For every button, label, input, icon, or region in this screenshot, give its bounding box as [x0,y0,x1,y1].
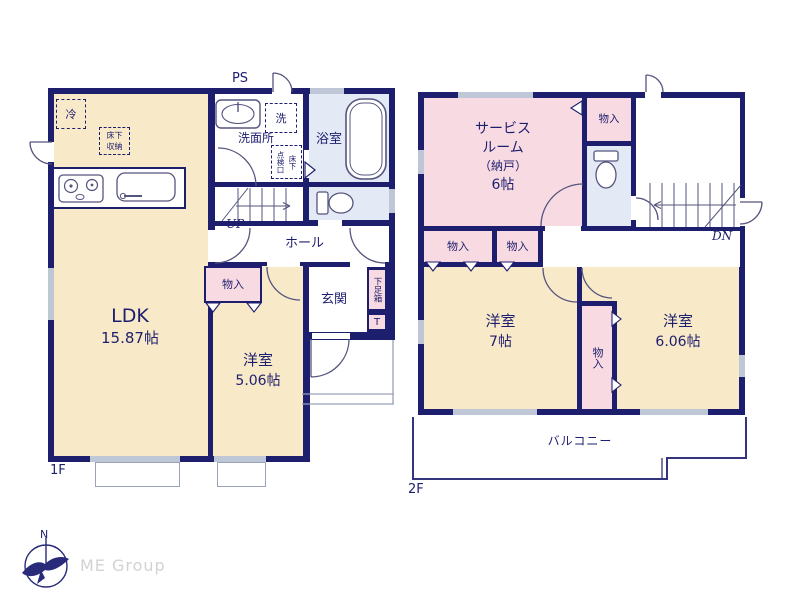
room-toilet-1f [309,187,389,220]
door-gap [631,196,636,220]
inspection-hatch: 点検口 床下 [271,145,302,179]
stairs-area-2f [636,183,740,227]
door-gap [312,333,350,339]
ldk-size: 15.87帖 [70,329,190,347]
up-label: UP [226,217,244,231]
room-youshitsu-6-entry [582,267,617,301]
door-gap [740,198,745,226]
washer-label: 洗 [276,110,287,126]
compass-north-label: N [40,528,48,541]
room-toilet-2f [587,146,631,226]
window [453,409,537,415]
bath-label: 浴室 [316,132,342,148]
window [48,268,54,320]
door-gap [545,226,581,231]
youshitsu-6-name: 洋室 [617,312,739,330]
door-gap [48,142,54,162]
shoe-box: 下足箱 [367,268,387,311]
closet-2f-top-label: 物入 [599,113,620,126]
door-gap [645,92,661,98]
floor1-label: 1F [50,463,66,479]
genkan-label: 玄関 [321,292,347,308]
service-room-line1: サービス [424,121,582,138]
window-shutter-bump [217,462,266,487]
youshitsu-1f-name: 洋室 [213,351,303,369]
window [739,355,745,377]
youshitsu-7-name: 洋室 [424,312,577,330]
shoe-box-label: 下足箱 [371,277,383,303]
service-room-size: 6帖 [424,177,582,194]
youshitsu-1f-size: 5.06帖 [213,373,303,390]
inspection-hatch-label: 点検口 [275,151,286,174]
door-gap [272,88,291,94]
door-gap [304,150,309,178]
closet-1f-label: 物入 [222,278,244,291]
window [310,88,344,94]
toilet-cabinet-label: T [374,317,380,328]
compass-icon [22,538,69,587]
washer-space: 洗 [265,103,297,133]
balcony-label: バルコニー [520,434,640,448]
porch-steps [302,340,394,404]
window-shutter-bump [95,462,180,487]
floorplan-image: 物入 下足箱 T 冷 床下収納 洗 点検口 床下 物入 物入 物入 物入 [0,0,800,600]
closet-2f-c: 物入 [582,306,612,409]
window [640,409,708,415]
closet-2f-top: 物入 [587,98,631,141]
fridge-label: 冷 [66,106,77,122]
brand-logo-text: ME Group [80,556,166,575]
toilet-cabinet: T [367,313,387,331]
closet-1f: 物入 [204,266,262,303]
door-gap [318,220,342,226]
youshitsu-6-size: 6.06帖 [617,334,739,351]
window [389,189,395,213]
youshitsu-7-size: 7帖 [424,334,577,351]
closet-2f-b: 物入 [497,231,538,262]
door-gap [543,262,577,267]
ldk-name: LDK [70,305,190,328]
stairs-area-1f [215,187,303,221]
floor2-label: 2F [408,482,424,498]
door-gap [267,262,300,267]
service-room-line2: ルーム [424,140,582,157]
closet-2f-a-label: 物入 [447,240,469,253]
underfloor-storage-label: 床下収納 [107,130,123,152]
door-gap [587,262,612,267]
window [458,92,533,98]
door-gap [208,230,215,262]
closet-2f-c-label: 物入 [589,347,605,369]
fridge-space: 冷 [56,99,86,129]
door-gap [350,262,385,267]
closet-2f-b-label: 物入 [507,240,529,253]
hall-label: ホール [285,236,324,252]
service-room-line3: （納戸） [424,159,582,173]
senmenjo-label: 洗面所 [238,131,274,145]
closet-2f-a: 物入 [424,231,492,262]
underfloor-label: 床下 [287,155,298,170]
underfloor-storage: 床下収納 [99,127,130,155]
landing-2f [636,98,740,183]
dn-label: DN [712,229,732,243]
room-ldk [54,94,208,456]
ps-label: PS [222,71,258,87]
